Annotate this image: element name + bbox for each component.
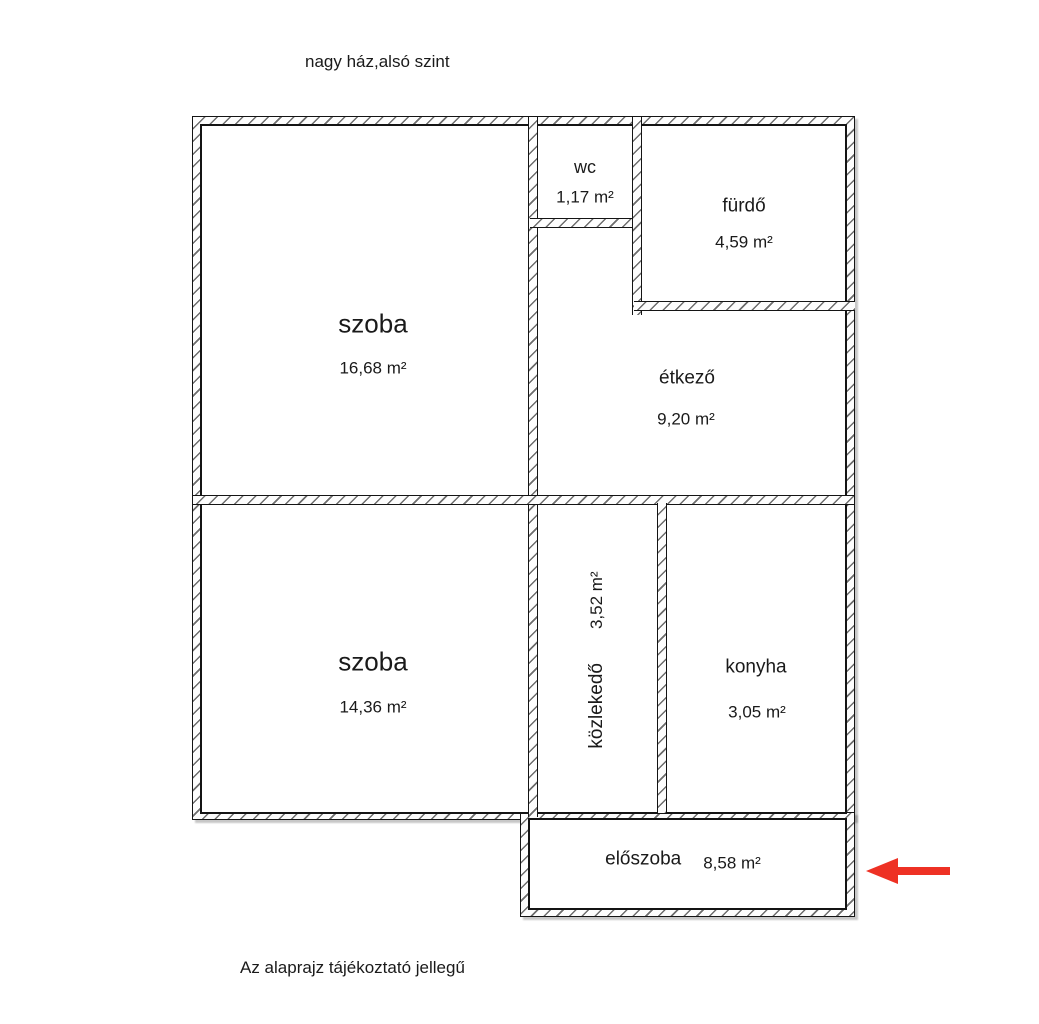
room-eloszoba-name: előszoba bbox=[605, 850, 681, 871]
entrance-arrow-shaft bbox=[894, 867, 950, 875]
room-szoba-lower-area: 14,36 m² bbox=[339, 699, 406, 718]
floor-plan: szoba 16,68 m² wc 1,17 m² fürdő 4,59 m² … bbox=[0, 0, 1039, 1024]
room-eloszoba-label: előszoba 8,58 m² bbox=[605, 850, 761, 871]
wall-wc-bottom bbox=[530, 218, 642, 228]
wall-furdo-bottom bbox=[634, 301, 855, 311]
room-konyha-name: konyha bbox=[725, 658, 786, 679]
room-szoba-upper-area: 16,68 m² bbox=[339, 360, 406, 379]
wall-konyha-left bbox=[657, 503, 667, 813]
room-furdo-area: 4,59 m² bbox=[715, 234, 773, 253]
wall-middle-horizontal bbox=[193, 495, 854, 505]
room-szoba-upper-name: szoba bbox=[338, 310, 407, 339]
room-wc-name: wc bbox=[574, 158, 596, 178]
room-kozlekedo-name: közlekedő bbox=[586, 663, 608, 749]
room-eloszoba-area: 8,58 m² bbox=[703, 855, 761, 874]
room-etkezo-area: 9,20 m² bbox=[657, 411, 715, 430]
room-furdo-name: fürdő bbox=[722, 197, 765, 218]
floor-plan-page: nagy ház,alsó szint szoba 16,68 m² wc 1,… bbox=[0, 0, 1039, 1024]
room-etkezo-name: étkező bbox=[659, 369, 715, 390]
room-kozlekedo-label: közlekedő 3,52 m² bbox=[586, 571, 608, 748]
wall-furdo-left bbox=[632, 117, 642, 315]
room-wc-area: 1,17 m² bbox=[556, 189, 614, 208]
room-kozlekedo-area: 3,52 m² bbox=[587, 571, 607, 629]
room-szoba-lower-name: szoba bbox=[338, 648, 407, 677]
entrance-arrow bbox=[866, 858, 951, 884]
plan-disclaimer: Az alaprajz tájékoztató jellegű bbox=[240, 958, 465, 978]
room-konyha-area: 3,05 m² bbox=[728, 704, 786, 723]
